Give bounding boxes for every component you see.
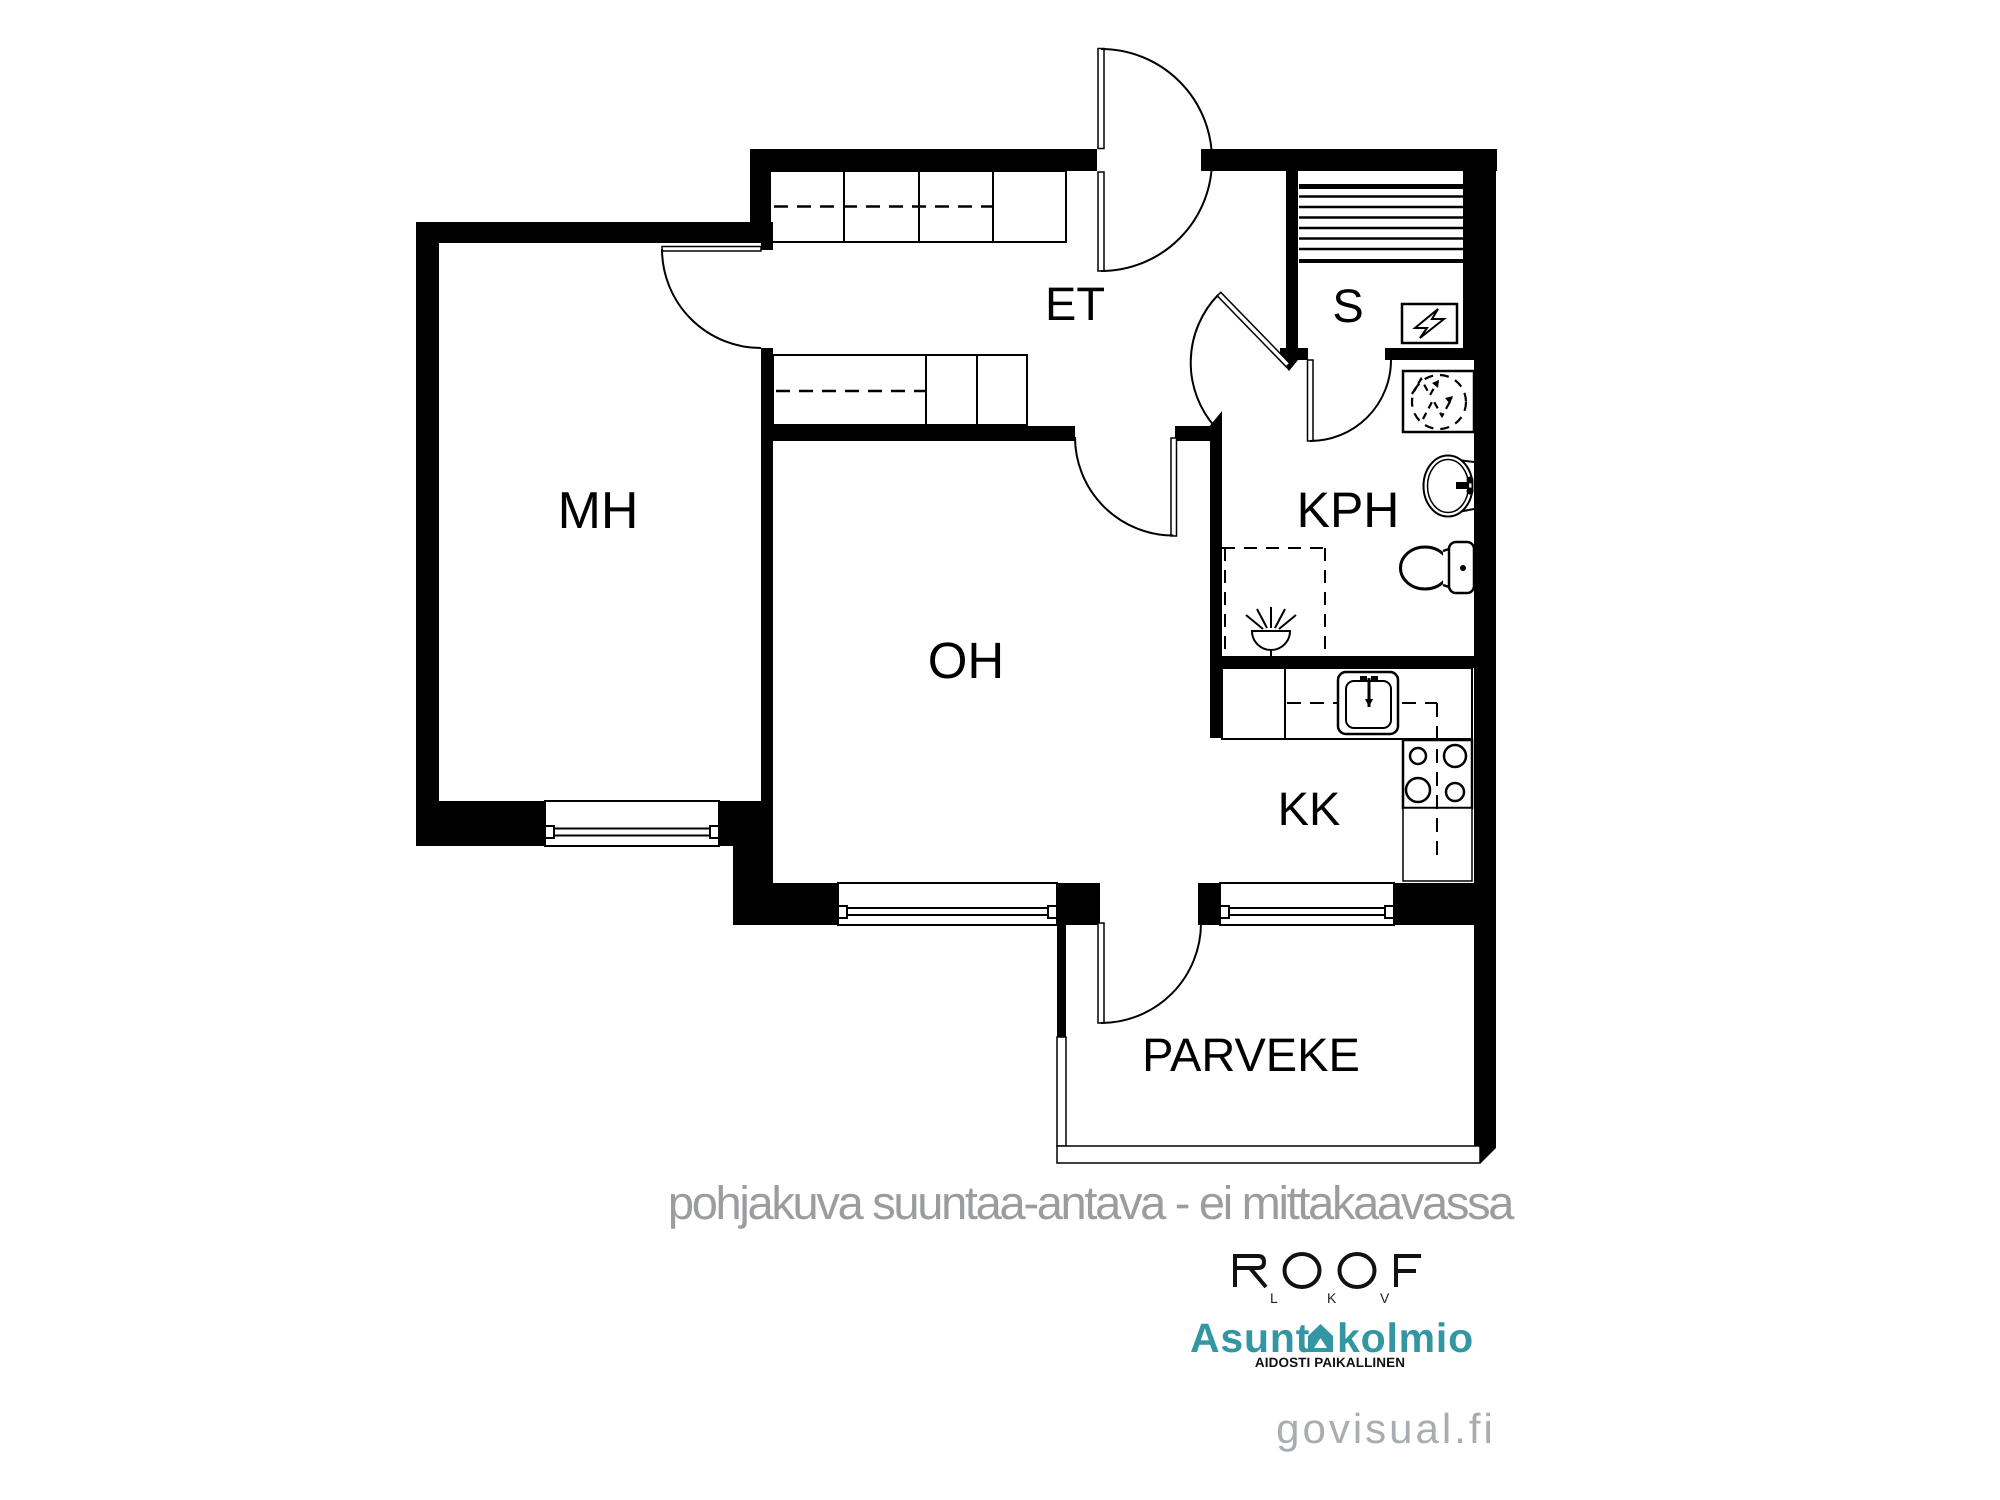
svg-text:OH: OH	[928, 632, 1005, 689]
svg-text:K: K	[1327, 1290, 1337, 1306]
svg-text:L: L	[1270, 1290, 1278, 1306]
svg-text:S: S	[1332, 279, 1363, 332]
svg-text:V: V	[1380, 1290, 1390, 1306]
svg-text:KK: KK	[1278, 782, 1341, 835]
svg-text:AIDOSTI PAIKALLINEN: AIDOSTI PAIKALLINEN	[1255, 1355, 1405, 1370]
svg-text:ET: ET	[1045, 277, 1105, 330]
svg-text:PARVEKE: PARVEKE	[1142, 1028, 1360, 1081]
svg-text:KPH: KPH	[1297, 482, 1400, 538]
svg-text:pohjakuva suuntaa-antava - ei: pohjakuva suuntaa-antava - ei mittakaava…	[668, 1176, 1515, 1229]
svg-text:govisual.fi: govisual.fi	[1276, 1405, 1496, 1452]
svg-text:MH: MH	[558, 482, 639, 540]
